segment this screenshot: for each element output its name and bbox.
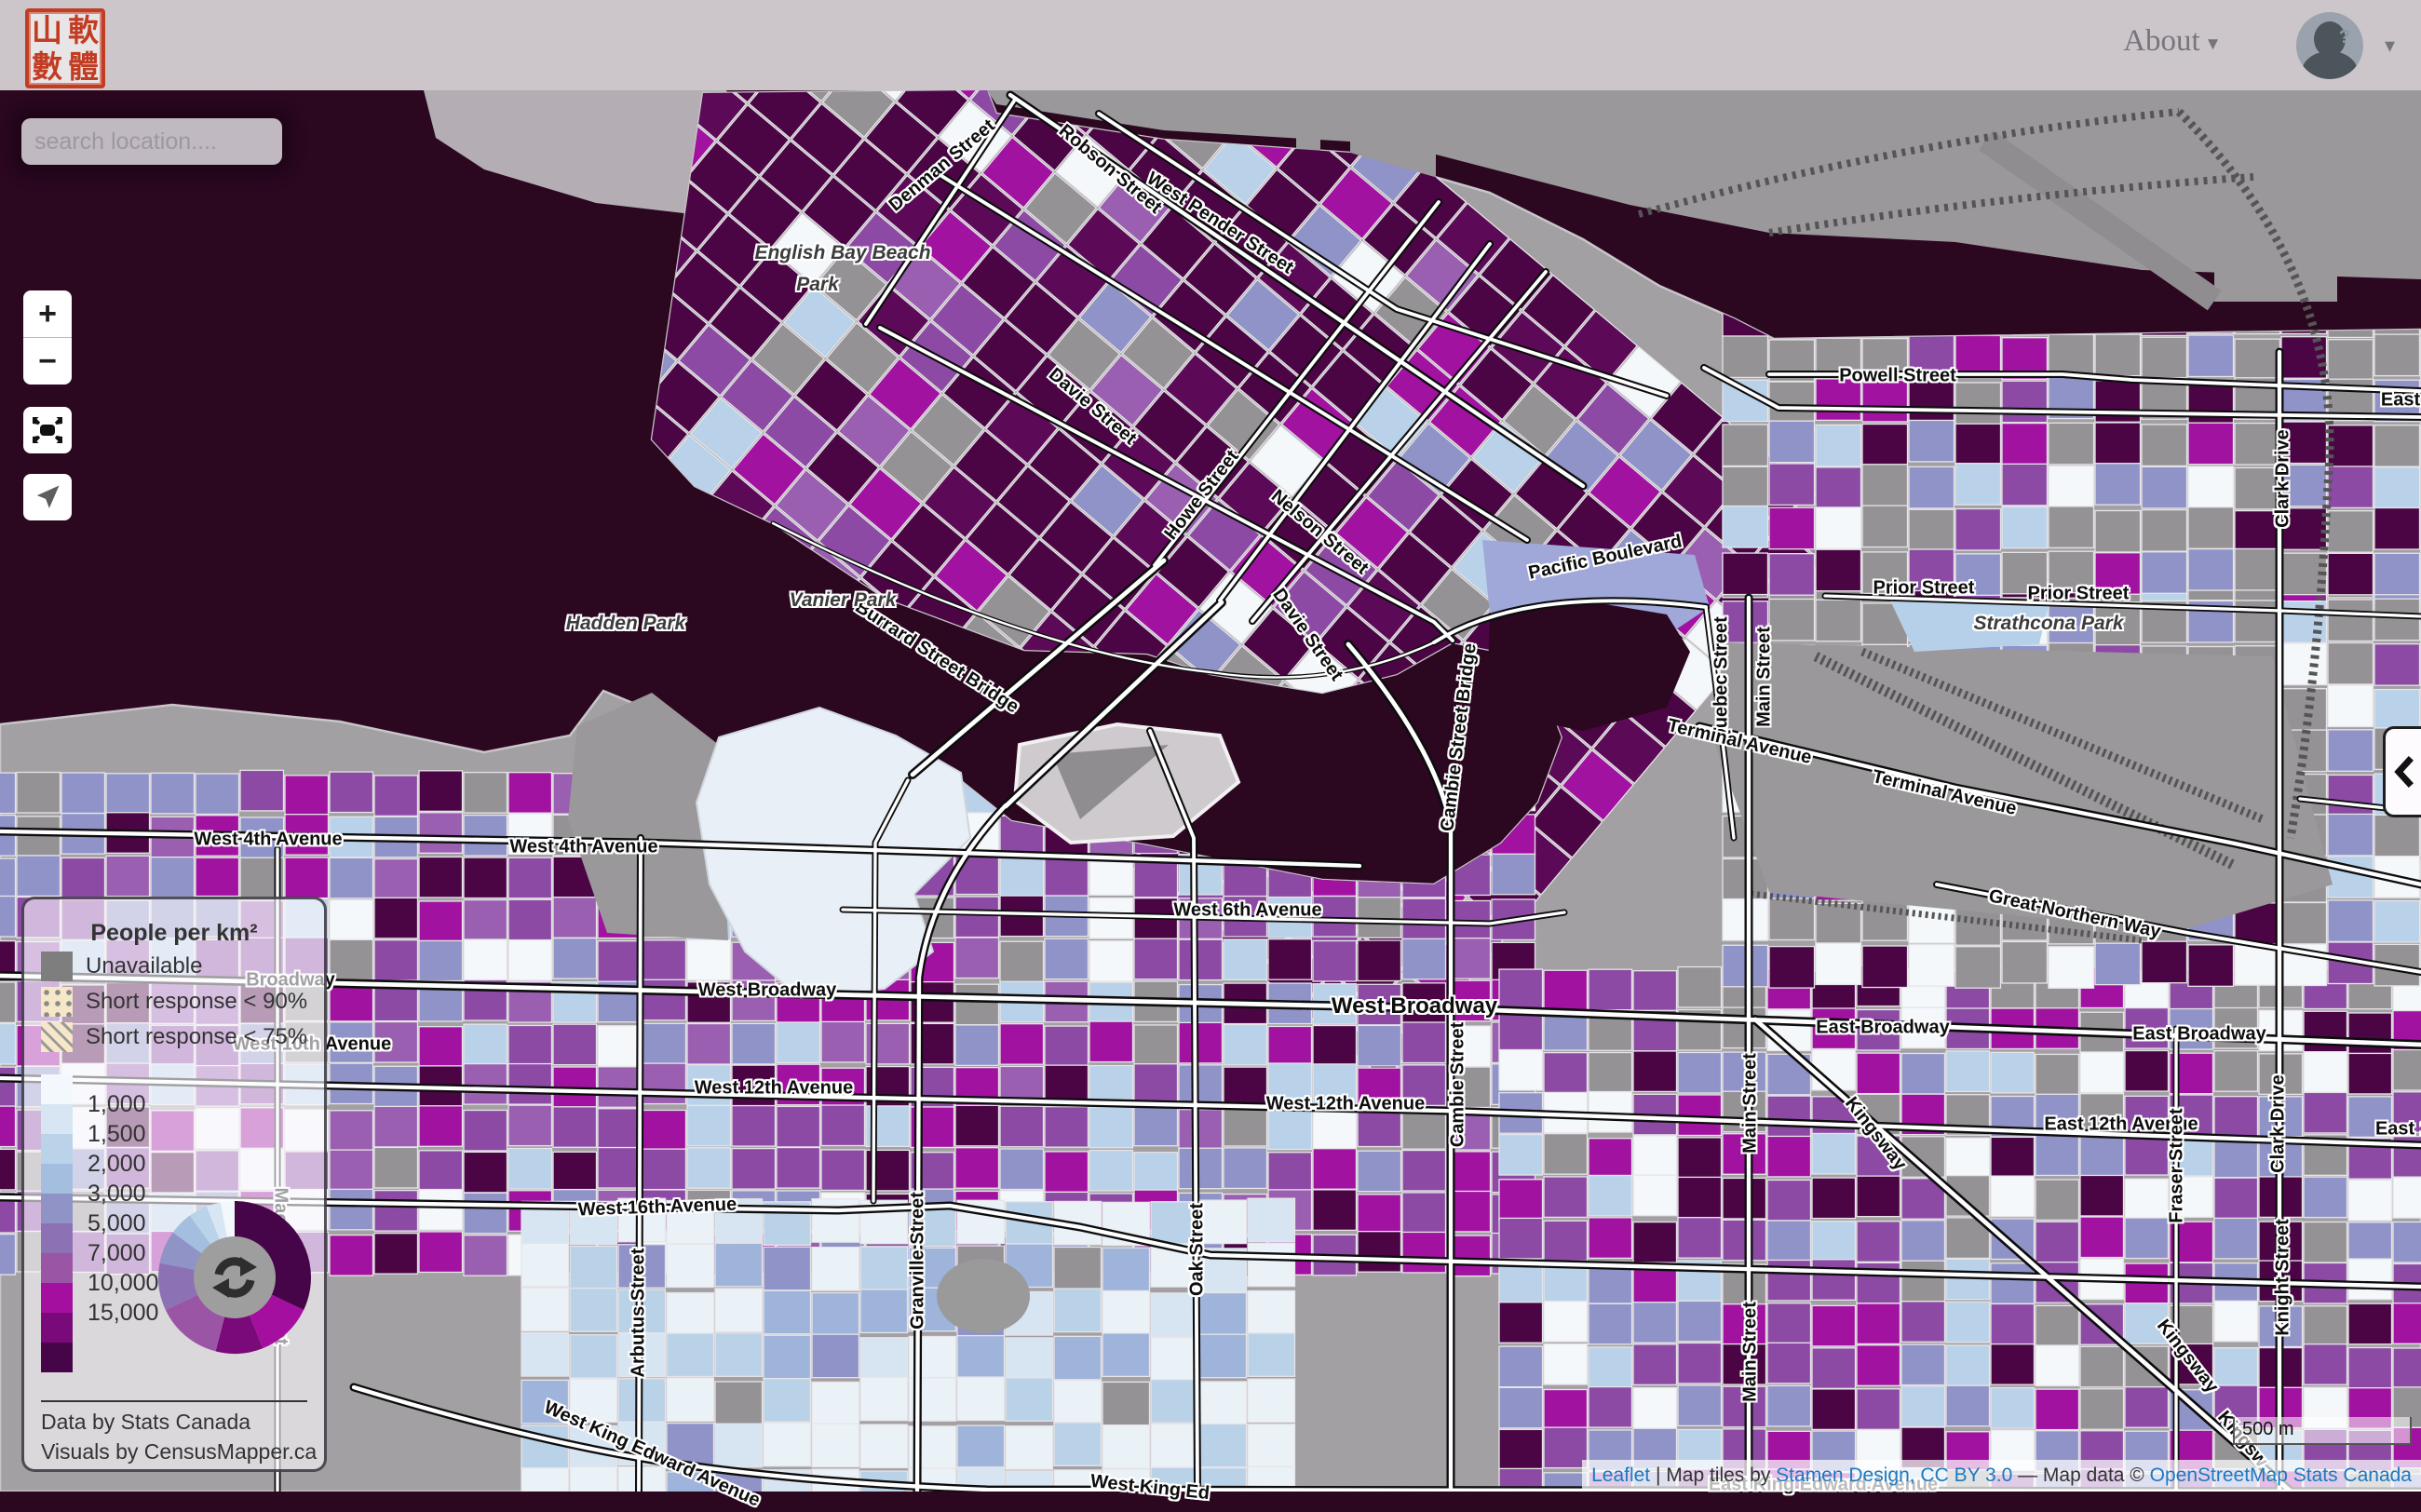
ramp-swatch — [41, 1164, 73, 1194]
zoom-in-button[interactable]: + — [23, 290, 72, 338]
legend-divider — [41, 1400, 307, 1402]
app-header: 山 軟 數 體 About ▾ ? ▾ — [0, 0, 2421, 90]
attribution-link[interactable]: Stamen Design, CC BY 3.0 — [1776, 1465, 2012, 1486]
legend-title: People per km² — [24, 920, 324, 947]
legend-special-entries: UnavailableShort response < 90%Short res… — [24, 951, 324, 1053]
ramp-swatch — [41, 1104, 73, 1134]
chevron-down-icon: ▾ — [2208, 31, 2218, 54]
attribution-bar: Leaflet | Map tiles by Stamen Design, CC… — [1582, 1460, 2421, 1492]
scale-label: 500 m — [2242, 1419, 2294, 1439]
legend-entry: Short response < 90% — [41, 986, 324, 1018]
legend-donut-chart — [153, 1195, 317, 1359]
legend-panel: People per km² UnavailableShort response… — [21, 897, 327, 1472]
logo-char: 軟 — [68, 15, 99, 46]
legend-swatch-dots — [41, 987, 73, 1017]
ramp-value: 15,000 — [88, 1300, 158, 1327]
donut-center — [194, 1236, 276, 1318]
zoom-out-button[interactable]: − — [23, 338, 72, 385]
ramp-value: 3,000 — [88, 1181, 146, 1208]
question-mark: ? — [2339, 27, 2350, 48]
app-logo[interactable]: 山 軟 數 體 — [25, 8, 105, 88]
ramp-value: 2,000 — [88, 1151, 146, 1178]
pier — [2214, 212, 2337, 302]
strathcona-pond — [1890, 601, 2049, 652]
about-menu[interactable]: About ▾ — [2123, 24, 2218, 59]
rail-flats — [1715, 642, 2333, 931]
attribution-link[interactable]: Stats Canada — [2293, 1465, 2412, 1486]
logo-char: 山 — [32, 15, 62, 46]
attribution-text: | Map tiles by — [1650, 1465, 1776, 1486]
park-oval — [937, 1259, 1030, 1333]
ramp-value: 10,000 — [88, 1270, 158, 1297]
scale-bar: 500 m — [2233, 1417, 2412, 1445]
ramp-value: 1,000 — [88, 1091, 146, 1118]
ramp-swatch — [41, 1343, 73, 1372]
legend-entry-label: Unavailable — [86, 953, 202, 979]
avatar[interactable]: ? — [2296, 12, 2363, 79]
ramp-swatch — [41, 1313, 73, 1343]
fullscreen-icon — [32, 414, 63, 446]
ramp-value: 5,000 — [88, 1210, 146, 1237]
search-input[interactable] — [21, 118, 282, 165]
ramp-value: 7,000 — [88, 1240, 146, 1267]
ramp-swatch — [41, 1223, 73, 1253]
about-label: About — [2123, 24, 2200, 58]
logo-char: 體 — [68, 51, 99, 82]
ramp-swatch — [41, 1134, 73, 1164]
locate-button[interactable] — [23, 474, 72, 520]
logo-char: 數 — [32, 51, 62, 82]
ramp-swatch — [41, 1194, 73, 1223]
legend-swatch-gray — [41, 952, 73, 981]
legend-entry-label: Short response < 90% — [86, 989, 307, 1015]
chevron-left-icon — [2391, 756, 2415, 788]
attribution-text: — Map data © — [2012, 1465, 2149, 1486]
locate-arrow-icon — [34, 483, 61, 511]
legend-entry: Short response < 75% — [41, 1021, 324, 1053]
legend-entry: Unavailable — [41, 951, 324, 982]
map-canvas[interactable] — [0, 90, 2421, 1492]
fullscreen-button[interactable] — [23, 407, 72, 453]
legend-entry-label: Short response < 75% — [86, 1024, 307, 1050]
avatar-silhouette — [2302, 51, 2358, 79]
ramp-value: 1,500 — [88, 1121, 146, 1148]
map-svg — [0, 90, 2421, 1492]
legend-credit[interactable]: Visuals by CensusMapper.ca — [41, 1439, 317, 1465]
chevron-down-icon[interactable]: ▾ — [2385, 34, 2395, 58]
legend-credit: Data by Stats Canada — [41, 1410, 250, 1435]
ramp-swatch — [41, 1283, 73, 1313]
legend-swatch-stripes — [41, 1022, 73, 1052]
panel-collapse-tab[interactable] — [2383, 726, 2421, 817]
ramp-swatch — [41, 1253, 73, 1283]
attribution-link[interactable]: OpenStreetMap — [2150, 1465, 2288, 1486]
ramp-swatch — [41, 1074, 73, 1104]
attribution-link[interactable]: Leaflet — [1591, 1465, 1650, 1486]
